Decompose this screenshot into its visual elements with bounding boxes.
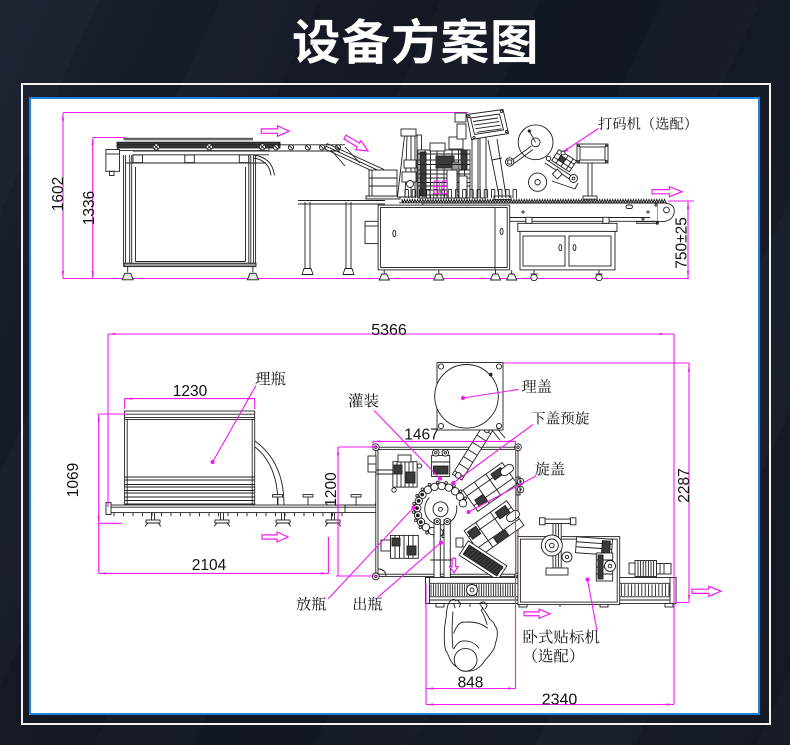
svg-text:2287: 2287 xyxy=(676,468,693,502)
svg-text:1069: 1069 xyxy=(65,463,82,497)
svg-text:2340: 2340 xyxy=(542,692,578,709)
svg-text:1230: 1230 xyxy=(173,383,208,400)
svg-text:1467: 1467 xyxy=(404,427,438,444)
svg-text:5366: 5366 xyxy=(371,322,407,339)
svg-text:2104: 2104 xyxy=(192,557,227,574)
svg-text:848: 848 xyxy=(458,675,484,692)
svg-text:750±25: 750±25 xyxy=(674,217,691,269)
svg-text:1602: 1602 xyxy=(50,177,67,211)
svg-text:1200: 1200 xyxy=(323,472,340,507)
svg-text:1336: 1336 xyxy=(81,191,98,225)
